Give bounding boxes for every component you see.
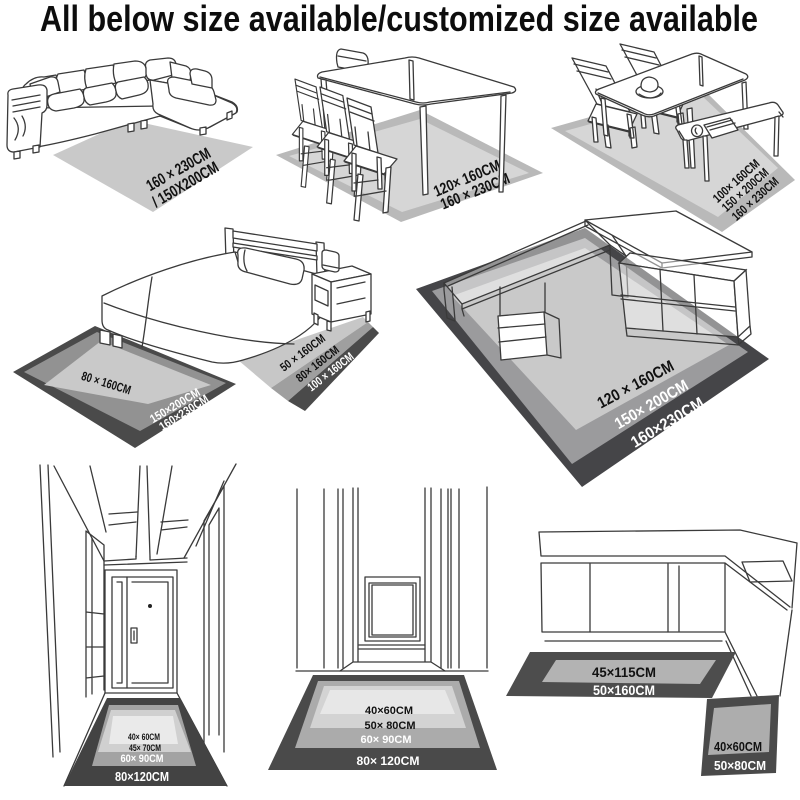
svg-text:80×120CM: 80×120CM [115, 770, 169, 784]
svg-text:40×60CM: 40×60CM [365, 705, 413, 717]
svg-text:40×60CM: 40×60CM [714, 739, 762, 754]
svg-text:60× 90CM: 60× 90CM [361, 734, 412, 746]
svg-text:50×80CM: 50×80CM [714, 758, 766, 773]
svg-text:50× 80CM: 50× 80CM [365, 720, 416, 732]
svg-text:All below size available/custo: All below size available/customized size… [40, 0, 758, 39]
svg-text:45× 70CM: 45× 70CM [129, 743, 161, 753]
svg-text:45×115CM: 45×115CM [592, 665, 656, 680]
svg-text:50×160CM: 50×160CM [593, 683, 655, 698]
svg-text:80× 120CM: 80× 120CM [357, 754, 420, 768]
svg-text:60× 90CM: 60× 90CM [121, 753, 164, 765]
svg-text:40× 60CM: 40× 60CM [128, 732, 160, 742]
